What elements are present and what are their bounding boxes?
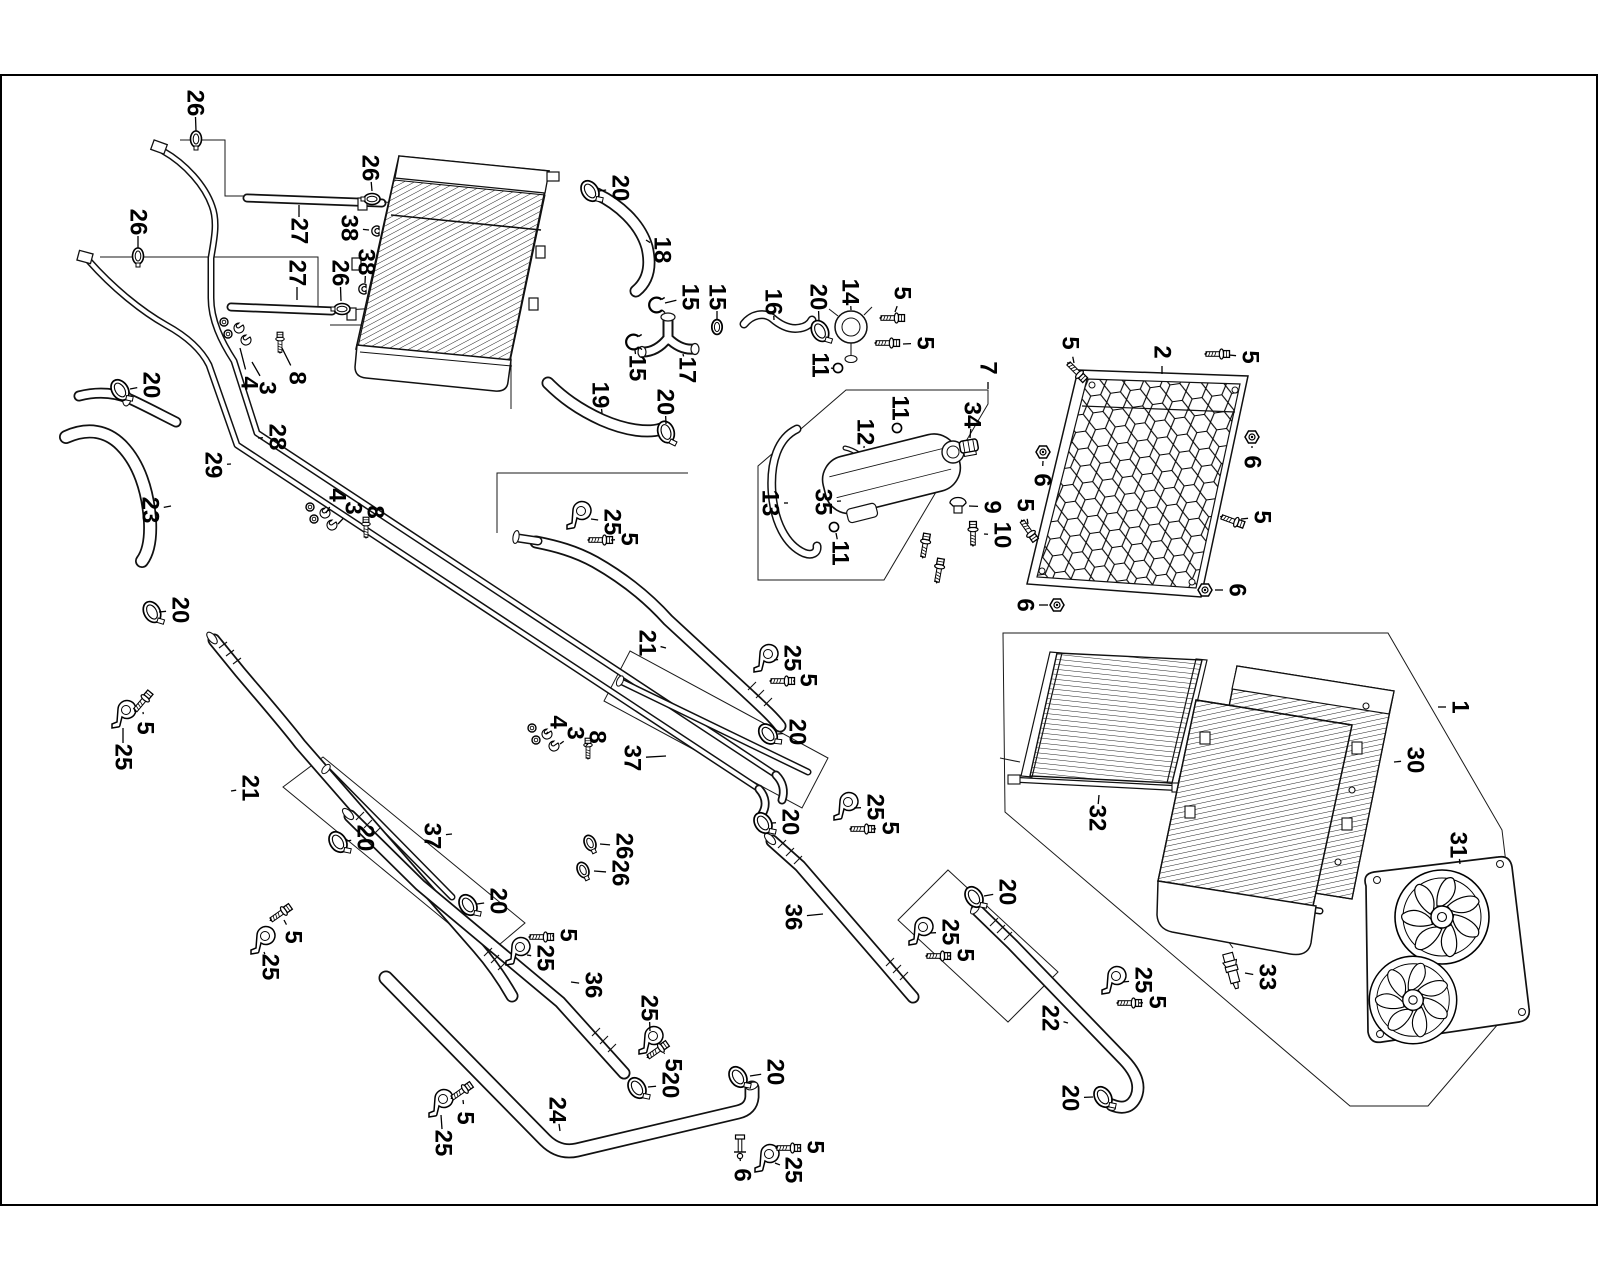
leader-line xyxy=(1459,859,1460,864)
callout-label-5: 5 xyxy=(1012,498,1039,511)
callout-label-5: 5 xyxy=(452,1111,479,1124)
callout-label-10: 10 xyxy=(989,522,1016,549)
callout-label-3: 3 xyxy=(254,381,281,394)
leader-line xyxy=(836,533,837,539)
callout-label-15: 15 xyxy=(704,284,731,311)
leader-line xyxy=(560,741,564,744)
callout-label-21: 21 xyxy=(237,775,264,802)
leader-line xyxy=(1027,519,1028,524)
callout-label-20: 20 xyxy=(994,879,1021,906)
callout-label-12: 12 xyxy=(852,419,879,446)
callout-label-36: 36 xyxy=(780,904,807,931)
callout-label-8: 8 xyxy=(362,505,389,518)
callout-label-25: 25 xyxy=(532,945,559,972)
callout-label-14: 14 xyxy=(837,279,864,306)
callout-label-5: 5 xyxy=(660,1058,687,1071)
callout-label-5: 5 xyxy=(1249,510,1276,523)
p-clamp-bracket-icon xyxy=(834,793,858,820)
callout-label-5: 5 xyxy=(1057,336,1084,349)
leader-line xyxy=(1098,795,1099,804)
y-pipe-17 xyxy=(638,313,699,358)
leader-line xyxy=(1241,518,1248,519)
screw-icon xyxy=(918,533,932,560)
expansion-tank-group xyxy=(772,429,968,554)
nut-icon xyxy=(1036,446,1050,458)
leader-line xyxy=(1073,357,1074,363)
leader-line xyxy=(665,300,676,303)
callout-label-25: 25 xyxy=(780,1157,807,1184)
leader-line xyxy=(371,182,372,191)
mesh-grille xyxy=(1027,370,1248,597)
callout-label-6: 6 xyxy=(1239,455,1266,468)
screw-icon xyxy=(769,676,795,686)
callout-label-18: 18 xyxy=(649,237,676,264)
hose-clamp-icon xyxy=(139,597,165,627)
callout-label-25: 25 xyxy=(1130,967,1157,994)
callout-label-11: 11 xyxy=(807,352,834,377)
screw-icon xyxy=(879,313,905,323)
callout-label-5: 5 xyxy=(132,721,159,734)
pipe-end-fitting xyxy=(151,140,168,154)
callout-label-20: 20 xyxy=(138,372,165,399)
callout-label-23: 23 xyxy=(137,497,164,524)
callout-label-6: 6 xyxy=(729,1168,756,1181)
o-ring-icon xyxy=(833,363,842,372)
screw-icon xyxy=(874,338,900,348)
callout-label-5: 5 xyxy=(280,930,307,943)
callout-label-4: 4 xyxy=(324,488,351,502)
callout-label-13: 13 xyxy=(757,490,784,517)
callout-label-27: 27 xyxy=(286,218,313,245)
callout-label-20: 20 xyxy=(652,389,679,416)
exploded-parts-diagram: 2626273826382726204382829234382052521525… xyxy=(0,0,1600,1280)
leader-line xyxy=(646,756,666,757)
left-hoses xyxy=(66,391,176,561)
callout-label-11: 11 xyxy=(827,540,854,565)
callout-label-25: 25 xyxy=(937,919,964,946)
callout-label-2: 2 xyxy=(1149,345,1176,358)
p-clamp-bracket-icon xyxy=(251,927,275,954)
leader-line xyxy=(600,844,610,845)
leader-line xyxy=(159,611,166,612)
callout-label-31: 31 xyxy=(1445,832,1472,859)
nut-icon xyxy=(1198,584,1212,596)
leader-line xyxy=(807,914,823,916)
p-clamp-bracket-icon xyxy=(754,645,778,672)
callout-label-25: 25 xyxy=(257,954,284,981)
callout-label-5: 5 xyxy=(1237,350,1264,363)
leader-line xyxy=(446,834,452,835)
callout-label-25: 25 xyxy=(110,744,137,771)
small-hose-clamp-icon xyxy=(582,833,600,855)
leader-line xyxy=(340,287,341,301)
pipe-end-fitting xyxy=(77,250,93,263)
screw-icon xyxy=(587,535,613,545)
leader-line xyxy=(477,903,484,904)
callout-label-6: 6 xyxy=(1029,473,1056,486)
callout-label-20: 20 xyxy=(762,1059,789,1086)
callout-label-11: 11 xyxy=(887,395,914,420)
callout-label-8: 8 xyxy=(584,730,611,743)
callout-label-26: 26 xyxy=(182,90,209,117)
fan-shroud-31 xyxy=(1365,857,1529,1044)
screw-icon xyxy=(932,558,946,585)
callout-label-24: 24 xyxy=(544,1097,571,1124)
callout-label-5: 5 xyxy=(555,928,582,941)
spring-clamp-icon xyxy=(649,298,665,313)
small-hose-clamp-icon xyxy=(575,860,593,882)
nut-icon xyxy=(1245,431,1259,443)
leader-line xyxy=(164,506,171,507)
screw-icon xyxy=(1218,512,1245,530)
screw-icon xyxy=(1116,998,1142,1008)
callout-label-26: 26 xyxy=(125,209,152,236)
leader-line xyxy=(559,1124,560,1131)
temp-sensor-icon xyxy=(1221,952,1244,990)
leader-line xyxy=(1229,355,1236,356)
hose-clamp-icon xyxy=(324,827,352,859)
callout-label-20: 20 xyxy=(607,175,634,202)
callout-label-22: 22 xyxy=(1037,1005,1064,1032)
cooling-fan-icon xyxy=(1395,870,1489,964)
p-clamp-bracket-icon xyxy=(429,1090,453,1117)
callout-label-6: 6 xyxy=(1224,583,1251,596)
callout-label-20: 20 xyxy=(805,284,832,311)
callout-label-37: 37 xyxy=(419,823,446,850)
leader-line xyxy=(594,871,606,872)
clip-icon xyxy=(372,226,379,236)
callout-label-36: 36 xyxy=(580,972,607,999)
callout-label-25: 25 xyxy=(862,794,889,821)
callout-label-20: 20 xyxy=(657,1072,684,1099)
leader-line xyxy=(527,955,531,956)
clip-icon xyxy=(359,284,366,294)
callout-label-29: 29 xyxy=(200,452,227,479)
radiator-32 xyxy=(1000,652,1207,792)
callout-label-20: 20 xyxy=(352,825,379,852)
leader-line xyxy=(778,733,783,734)
callout-label-20: 20 xyxy=(485,888,512,915)
small-hose-clamp-icon xyxy=(133,248,144,267)
callout-label-37: 37 xyxy=(619,745,646,772)
callout-label-28: 28 xyxy=(264,424,291,451)
p-clamp-bracket-icon xyxy=(567,502,591,529)
callout-label-26: 26 xyxy=(607,860,634,887)
seal-ring-icon xyxy=(712,320,722,335)
callout-label-25: 25 xyxy=(430,1130,457,1157)
callout-label-17: 17 xyxy=(674,357,701,384)
callout-label-20: 20 xyxy=(167,597,194,624)
thermostat-housing-14 xyxy=(829,307,872,363)
screw-icon xyxy=(267,902,294,925)
callout-label-5: 5 xyxy=(795,673,822,686)
callout-label-1: 1 xyxy=(1447,700,1474,713)
leader-line xyxy=(338,518,343,524)
screw-icon xyxy=(1017,517,1040,544)
leader-line xyxy=(441,1115,442,1129)
leader-line xyxy=(282,348,291,365)
callout-label-27: 27 xyxy=(284,260,311,287)
leader-line xyxy=(648,1086,656,1087)
callout-label-38: 38 xyxy=(353,249,380,276)
callouts-layer: 2626273826382726204382829234382052521525… xyxy=(110,90,1474,1184)
callout-label-15: 15 xyxy=(624,355,651,382)
callout-label-26: 26 xyxy=(611,833,638,860)
leader-line xyxy=(347,840,351,841)
leader-line xyxy=(970,429,971,438)
callout-label-35: 35 xyxy=(810,489,837,516)
leader-line xyxy=(1245,973,1253,974)
callout-label-15: 15 xyxy=(677,284,704,311)
leader-line xyxy=(363,229,369,230)
o-ring-icon xyxy=(892,423,901,432)
callout-label-19: 19 xyxy=(587,382,614,409)
leader-line xyxy=(240,348,246,369)
callout-label-25: 25 xyxy=(779,645,806,672)
screw-icon xyxy=(968,522,978,548)
o-ring-icon xyxy=(829,522,838,531)
callout-label-25: 25 xyxy=(636,995,663,1022)
stud-bolt-icon xyxy=(734,1135,746,1159)
screw-icon xyxy=(849,824,875,834)
cooling-fan-icon xyxy=(1369,956,1456,1043)
callout-label-5: 5 xyxy=(889,286,916,299)
callout-label-5: 5 xyxy=(1144,995,1171,1008)
callout-label-16: 16 xyxy=(760,289,787,316)
leader-line xyxy=(571,982,579,983)
parts-diagram-page: 2626273826382726204382829234382052521525… xyxy=(0,0,1600,1280)
spring-clamp-icon xyxy=(626,335,642,350)
callout-label-7: 7 xyxy=(975,361,1002,374)
callout-label-26: 26 xyxy=(357,155,384,182)
callout-label-5: 5 xyxy=(802,1140,829,1153)
leader-line xyxy=(252,362,260,376)
callout-label-26: 26 xyxy=(327,260,354,287)
grommet-icon xyxy=(950,498,966,514)
leader-line xyxy=(130,388,137,389)
callout-label-20: 20 xyxy=(777,809,804,836)
callout-label-34: 34 xyxy=(959,402,986,429)
callout-label-21: 21 xyxy=(634,630,661,657)
leader-line xyxy=(775,1163,780,1165)
callout-label-20: 20 xyxy=(784,719,811,746)
callout-label-33: 33 xyxy=(1254,964,1281,991)
callout-label-20: 20 xyxy=(1057,1085,1084,1112)
p-clamp-bracket-icon xyxy=(755,1145,779,1172)
leader-line xyxy=(895,306,897,312)
callout-label-5: 5 xyxy=(616,532,643,545)
leader-line xyxy=(984,894,993,896)
callout-label-5: 5 xyxy=(912,336,939,349)
leader-line xyxy=(231,790,236,791)
nut-icon xyxy=(1050,599,1064,611)
callout-label-8: 8 xyxy=(284,371,311,384)
callout-label-5: 5 xyxy=(877,821,904,834)
leader-line xyxy=(750,1074,761,1076)
leader-line xyxy=(591,519,598,520)
small-hose-clamp-icon xyxy=(191,131,202,150)
screw-icon xyxy=(1204,349,1230,359)
leader-line xyxy=(284,920,286,925)
drawing-frame xyxy=(1,75,1597,1205)
callout-label-6: 6 xyxy=(1012,598,1039,611)
callout-label-5: 5 xyxy=(952,948,979,961)
callout-label-32: 32 xyxy=(1084,805,1111,832)
p-clamp-bracket-icon xyxy=(1102,967,1126,994)
screw-icon xyxy=(528,932,554,942)
screw-icon xyxy=(925,951,951,961)
leader-line xyxy=(1394,761,1401,762)
callout-label-30: 30 xyxy=(1402,747,1429,774)
callout-label-38: 38 xyxy=(336,215,363,242)
leader-line xyxy=(1123,981,1129,982)
callout-label-9: 9 xyxy=(979,500,1006,513)
leader-line xyxy=(195,117,196,131)
leader-line xyxy=(664,1053,665,1054)
